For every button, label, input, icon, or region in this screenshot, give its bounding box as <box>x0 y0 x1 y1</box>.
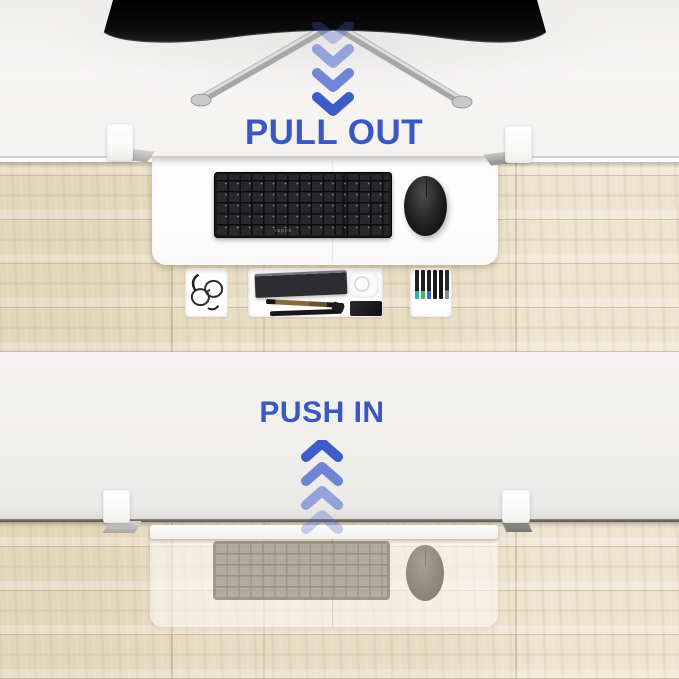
storage-compartment-right <box>410 268 452 317</box>
mouse-ghost <box>406 545 444 601</box>
desk-clamp-bottom-left <box>103 490 130 523</box>
push-in-label: PUSH IN <box>259 398 384 428</box>
desk-clamp-top-left <box>107 124 133 161</box>
marker-black-2 <box>439 270 443 299</box>
storage-compartment-middle <box>248 268 383 317</box>
keyboard-ghost <box>213 541 390 600</box>
storage-box <box>350 301 382 316</box>
scene-pull-out: PULL OUT rapoo <box>0 0 679 352</box>
earbuds-cable-loop <box>354 276 370 292</box>
black-pen <box>270 309 342 316</box>
marker-gray <box>445 270 449 299</box>
desk-clamp-bottom-right <box>502 490 530 523</box>
desk-clamp-top-right <box>505 126 532 163</box>
marker-black-1 <box>433 270 437 299</box>
hidden-tray-ghost <box>150 539 498 627</box>
pull-out-label: PULL OUT <box>245 115 423 150</box>
keyboard-brand: rapoo <box>214 227 353 235</box>
keyboard-keys <box>217 175 389 235</box>
storage-compartment-left <box>185 268 228 317</box>
marker-teal <box>415 270 419 299</box>
eyeglasses <box>185 268 228 317</box>
chevron-down-arrows-icon <box>311 22 355 118</box>
tablet <box>255 270 348 298</box>
keyboard-ghost-keys <box>216 544 387 597</box>
chevron-up-arrows-icon <box>300 440 344 536</box>
mouse <box>404 176 447 236</box>
scene-push-in: PUSH IN <box>0 352 679 679</box>
keyboard: rapoo <box>214 172 392 238</box>
marker-blue <box>427 270 431 299</box>
product-instruction-image: PULL OUT rapoo <box>0 0 679 679</box>
marker-pens <box>415 270 449 299</box>
marker-green <box>421 270 425 299</box>
